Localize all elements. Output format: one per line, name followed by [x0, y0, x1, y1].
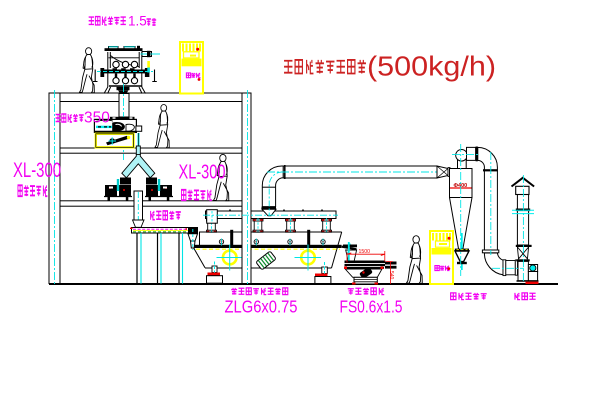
svg-text:XL-300: XL-300	[179, 162, 226, 184]
svg-text:1.5: 1.5	[128, 14, 147, 29]
svg-text:1500: 1500	[359, 249, 371, 255]
svg-text:XL-300: XL-300	[13, 159, 61, 182]
svg-text:FS0.6x1.5: FS0.6x1.5	[340, 297, 403, 317]
svg-text:540: 540	[388, 271, 394, 280]
svg-text:350: 350	[84, 110, 110, 127]
svg-text:ZLG6x0.75: ZLG6x0.75	[225, 297, 298, 317]
svg-text:(500kg/h): (500kg/h)	[367, 51, 496, 82]
